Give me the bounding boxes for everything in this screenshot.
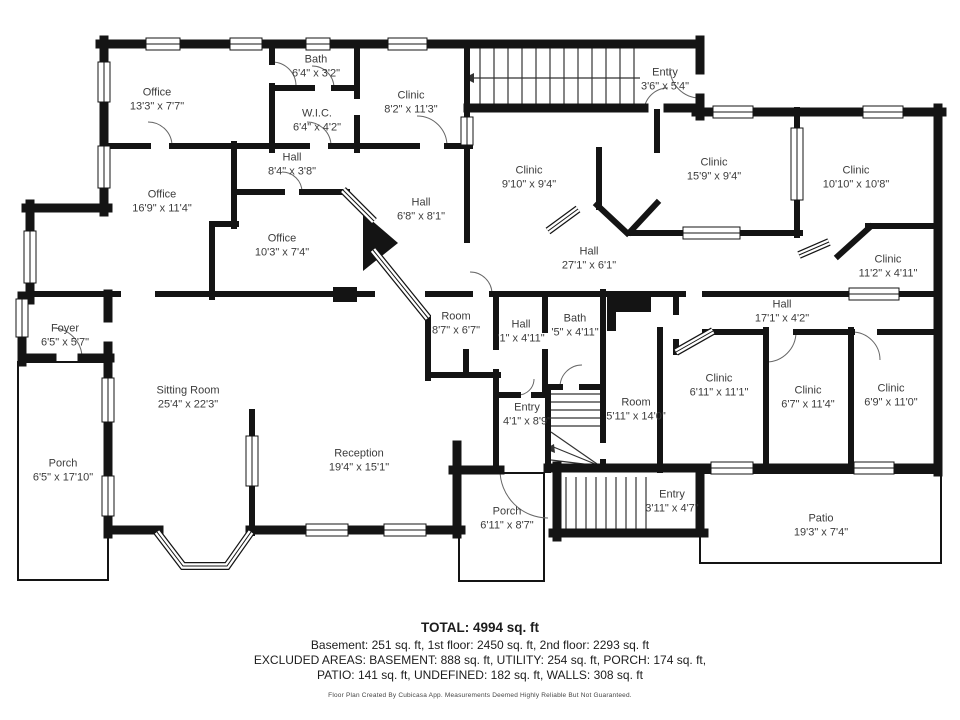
room-dims: 6'11" x 11'1"	[690, 386, 749, 400]
room-label-bath-2: Bath'5" x 4'11"	[551, 313, 598, 340]
room-dims: 4'1" x 8'9"	[503, 415, 551, 429]
room-name: Patio	[794, 513, 848, 527]
room-dims: 3'6" x 5'4"	[641, 80, 689, 94]
room-label-entry-2: Entry4'1" x 8'9"	[503, 402, 551, 429]
room-dims: 10'3" x 7'4"	[255, 246, 309, 260]
room-label-clinic-5: Clinic11'2" x 4'11"	[859, 254, 918, 281]
room-label-hall-2: Hall6'8" x 8'1"	[397, 197, 445, 224]
room-label-clinic-3: Clinic15'9" x 9'4"	[687, 157, 741, 184]
excluded-areas-text-2: PATIO: 141 sq. ft, UNDEFINED: 182 sq. ft…	[0, 668, 960, 682]
room-label-clinic-2: Clinic9'10" x 9'4"	[502, 165, 556, 192]
room-name: Hall	[497, 319, 544, 333]
total-area-text: TOTAL: 4994 sq. ft	[0, 620, 960, 635]
room-name: Foyer	[41, 323, 89, 337]
room-name: Clinic	[781, 385, 834, 399]
room-dims: 6'8" x 8'1"	[397, 210, 445, 224]
room-dims: 10'10" x 10'8"	[823, 178, 889, 192]
room-dims: 8'4" x 3'8"	[268, 165, 316, 179]
room-dims: 15'9" x 9'4"	[687, 170, 741, 184]
room-name: Entry	[641, 67, 689, 81]
room-name: Porch	[33, 458, 93, 472]
room-dims: 6'4" x 4'2"	[293, 121, 341, 135]
room-name: Office	[130, 87, 184, 101]
room-label-clinic-8: Clinic6'9" x 11'0"	[864, 383, 917, 410]
room-name: Clinic	[823, 165, 889, 179]
area-summary: TOTAL: 4994 sq. ft Basement: 251 sq. ft,…	[0, 620, 960, 706]
room-dims: 11'2" x 4'11"	[859, 267, 918, 281]
staircase-top	[464, 48, 640, 107]
room-label-clinic-7: Clinic6'7" x 11'4"	[781, 385, 834, 412]
excluded-areas-text-1: EXCLUDED AREAS: BASEMENT: 888 sq. ft, UT…	[0, 653, 960, 667]
room-name: Hall	[562, 246, 616, 260]
room-label-reception: Reception19'4" x 15'1"	[329, 448, 389, 475]
room-dims: 6'5" x 17'10"	[33, 471, 93, 485]
exterior-walls	[22, 40, 942, 537]
room-dims: 8'2" x 11'3"	[384, 103, 437, 117]
room-label-patio: Patio19'3" x 7'4"	[794, 513, 848, 540]
room-name: Clinic	[502, 165, 556, 179]
floor-plan-page: Office13'3" x 7'7" Bath6'4" x 3'2" W.I.C…	[0, 0, 960, 720]
room-name: Entry	[645, 489, 698, 503]
room-label-hall-1: Hall8'4" x 3'8"	[268, 152, 316, 179]
disclaimer-text: Floor Plan Created By Cubicasa App. Meas…	[0, 692, 960, 699]
room-dims: 25'4" x 22'3"	[157, 398, 220, 412]
room-name: Hall	[755, 299, 809, 313]
room-label-clinic-6: Clinic6'11" x 11'1"	[690, 373, 749, 400]
room-label-entry-3: Entry3'11" x 4'7"	[645, 489, 698, 516]
room-label-hall-4: Hall17'1" x 4'2"	[755, 299, 809, 326]
room-dims: 6'11" x 8'7"	[480, 519, 533, 533]
room-label-clinic-4: Clinic10'10" x 10'8"	[823, 165, 889, 192]
room-label-sitting-room: Sitting Room25'4" x 22'3"	[157, 385, 220, 412]
room-dims: '5" x 4'11"	[551, 326, 598, 340]
room-dims: 6'4" x 3'2"	[292, 67, 340, 81]
room-label-hall-3: Hall27'1" x 6'1"	[562, 246, 616, 273]
room-label-room-2: Room5'11" x 14'0"	[606, 397, 666, 424]
room-dims: 27'1" x 6'1"	[562, 259, 616, 273]
room-name: Clinic	[864, 383, 917, 397]
room-label-entry-1: Entry3'6" x 5'4"	[641, 67, 689, 94]
room-label-bath-1: Bath6'4" x 3'2"	[292, 54, 340, 81]
room-dims: 6'7" x 11'4"	[781, 398, 834, 412]
room-name: Hall	[268, 152, 316, 166]
room-name: Bath	[292, 54, 340, 68]
room-dims: 17'1" x 4'2"	[755, 312, 809, 326]
floor-areas-text: Basement: 251 sq. ft, 1st floor: 2450 sq…	[0, 638, 960, 652]
room-label-wic: W.I.C.6'4" x 4'2"	[293, 108, 341, 135]
room-dims: 19'3" x 7'4"	[794, 526, 848, 540]
room-label-office-2: Office16'9" x 11'4"	[132, 189, 192, 216]
room-dims: 16'9" x 11'4"	[132, 202, 192, 216]
room-name: Clinic	[859, 254, 918, 268]
room-name: Room	[606, 397, 666, 411]
room-dims: 6'9" x 11'0"	[864, 396, 917, 410]
room-label-clinic-1: Clinic8'2" x 11'3"	[384, 90, 437, 117]
room-name: Clinic	[687, 157, 741, 171]
room-name: Bath	[551, 313, 598, 327]
room-name: Entry	[503, 402, 551, 416]
room-dims: 8'7" x 6'7"	[432, 324, 480, 338]
room-label-office-3: Office10'3" x 7'4"	[255, 233, 309, 260]
room-dims: 19'4" x 15'1"	[329, 461, 389, 475]
room-dims: 5'11" x 14'0"	[606, 410, 666, 424]
room-name: Reception	[329, 448, 389, 462]
room-name: Sitting Room	[157, 385, 220, 399]
room-name: Porch	[480, 506, 533, 520]
room-name: Office	[255, 233, 309, 247]
staircase-bottom-right	[566, 477, 646, 529]
room-label-room-1: Room8'7" x 6'7"	[432, 311, 480, 338]
room-dims: 6'5" x 5'7"	[41, 336, 89, 350]
room-name: Clinic	[690, 373, 749, 387]
interior-walls	[30, 44, 938, 533]
room-dims: 13'3" x 7'7"	[130, 100, 184, 114]
room-dims: 9'10" x 9'4"	[502, 178, 556, 192]
room-label-office-1: Office13'3" x 7'7"	[130, 87, 184, 114]
room-name: Room	[432, 311, 480, 325]
room-label-foyer: Foyer6'5" x 5'7"	[41, 323, 89, 350]
room-dims: 3'11" x 4'7"	[645, 502, 698, 516]
staircase-center-winder	[545, 394, 600, 466]
room-label-hall-5: Hall'1" x 4'11"	[497, 319, 544, 346]
room-dims: '1" x 4'11"	[497, 332, 544, 346]
room-label-porch-1: Porch6'5" x 17'10"	[33, 458, 93, 485]
room-name: Office	[132, 189, 192, 203]
room-name: Hall	[397, 197, 445, 211]
room-name: W.I.C.	[293, 108, 341, 122]
room-name: Clinic	[384, 90, 437, 104]
room-label-porch-2: Porch6'11" x 8'7"	[480, 506, 533, 533]
